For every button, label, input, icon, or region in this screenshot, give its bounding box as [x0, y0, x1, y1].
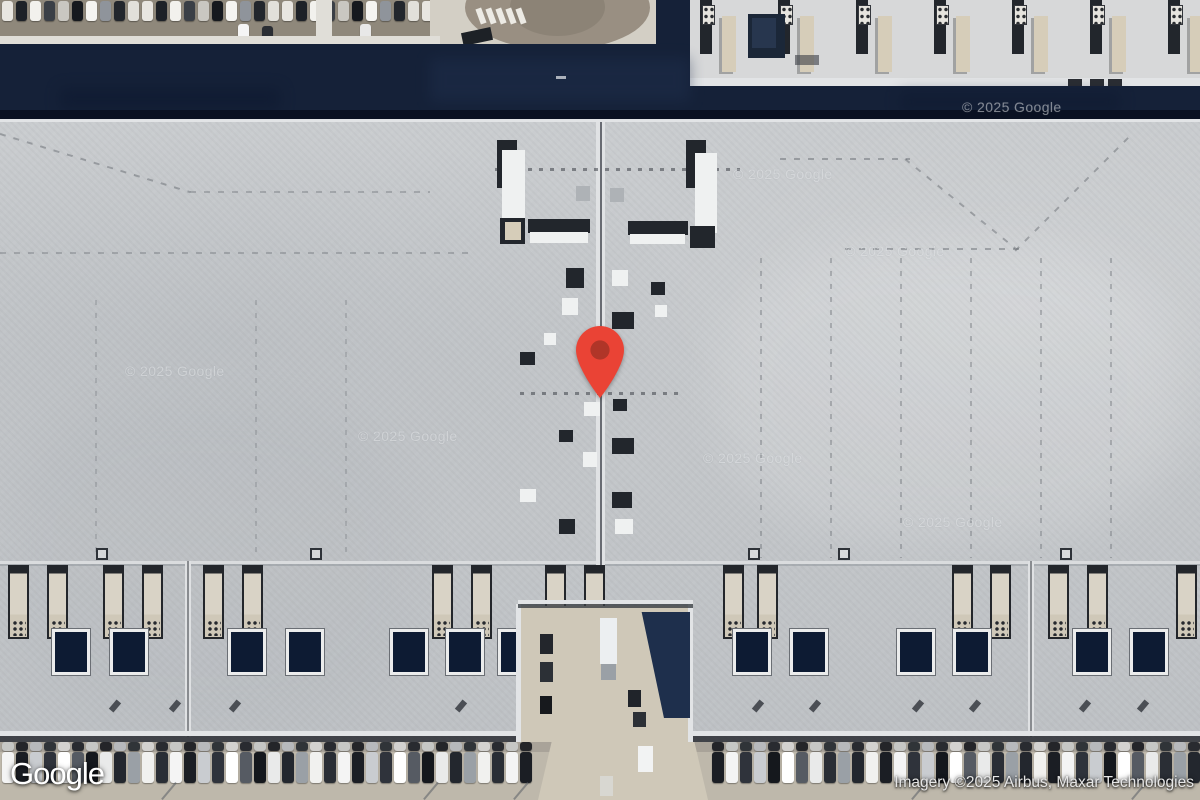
google-watermark: © 2025 Google — [125, 363, 225, 379]
map-canvas[interactable]: © 2025 Google© 2025 Google© 2025 Google©… — [0, 0, 1200, 800]
google-logo[interactable]: Google — [10, 756, 104, 792]
map-pin[interactable] — [576, 326, 624, 398]
google-watermark: © 2025 Google — [845, 243, 945, 259]
google-watermark: © 2025 Google — [903, 514, 1003, 530]
google-watermark: © 2025 Google — [962, 99, 1062, 115]
google-watermark: © 2025 Google — [703, 450, 803, 466]
google-watermark: © 2025 Google — [358, 428, 458, 444]
imagery-attribution: Imagery ©2025 Airbus, Maxar Technologies — [894, 774, 1194, 792]
google-watermark: © 2025 Google — [733, 166, 833, 182]
watermark-layer: © 2025 Google© 2025 Google© 2025 Google©… — [0, 0, 1200, 800]
